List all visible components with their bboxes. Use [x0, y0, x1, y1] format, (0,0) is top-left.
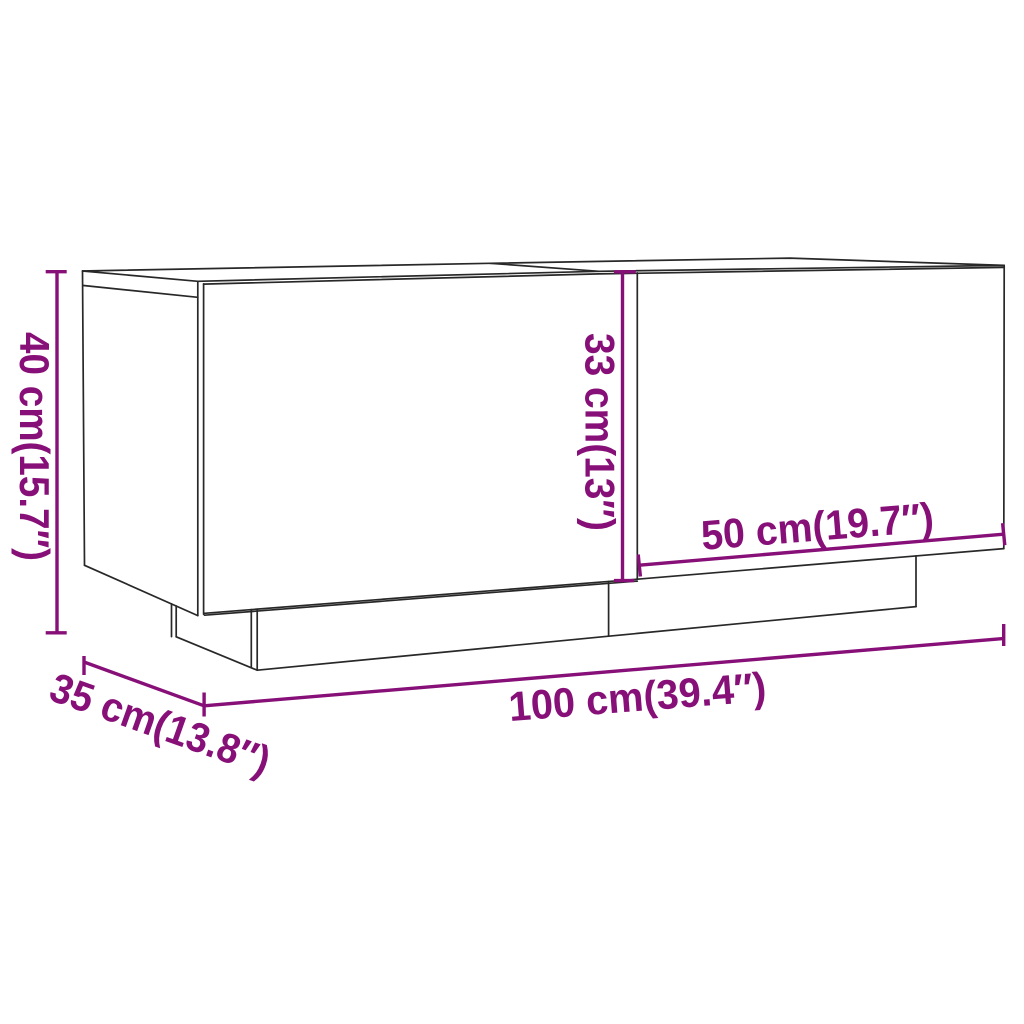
svg-text:35 cm(13.8″): 35 cm(13.8″): [44, 663, 276, 784]
svg-text:100 cm(39.4″): 100 cm(39.4″): [507, 663, 768, 730]
svg-text:40 cm(15.7″): 40 cm(15.7″): [11, 332, 58, 561]
svg-text:33 cm(13″): 33 cm(13″): [577, 333, 624, 531]
svg-text:50 cm(19.7″): 50 cm(19.7″): [699, 493, 935, 559]
